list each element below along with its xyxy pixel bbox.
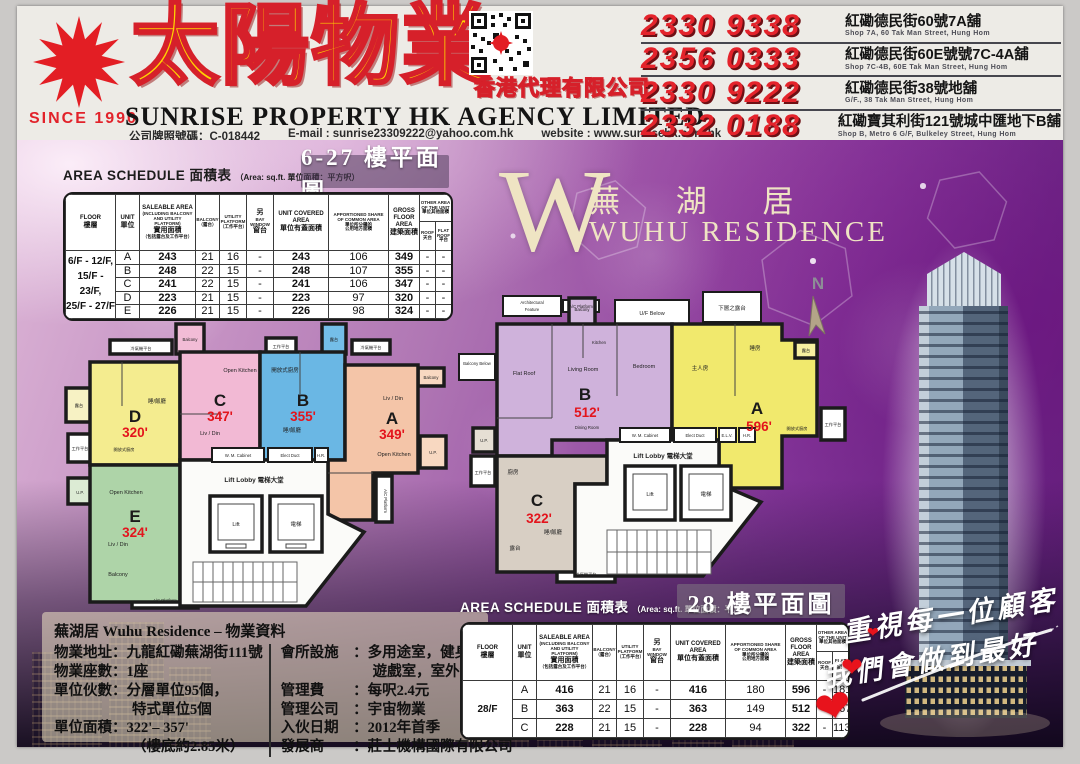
room-label: Kitchen	[592, 340, 607, 345]
header: SINCE 1990 太陽物業 SUNRISE PROPERTY HK AGEN…	[17, 6, 1063, 140]
info-value: 宇宙物業	[368, 702, 426, 718]
service-label: W. M. Cabinet	[632, 433, 659, 438]
outside-label: U/F Below	[639, 311, 664, 317]
col-common: APPORTIONED SHAREOF COMMON AREA單位所分攤的公用地…	[726, 625, 786, 681]
col-balcony: BALCONY（露台）	[196, 195, 220, 251]
room-label: 露台	[509, 544, 521, 552]
table-row: E2262115-22698324--	[66, 305, 452, 319]
swoosh-underline	[855, 614, 1060, 714]
unit-letter: A	[386, 409, 398, 428]
outside-label: A/C Platform	[569, 304, 593, 309]
table-header: FLOOR樓層 UNIT單位 SALEABLE AREA(INCLUDING B…	[463, 625, 849, 681]
schedule-title-text: AREA SCHEDULE 面積表	[63, 168, 232, 183]
info-value: 1座	[127, 664, 149, 680]
area-table-6-27: FLOOR樓層 UNIT單位 SALEABLE AREA(INCLUDING B…	[63, 192, 453, 321]
unit-letter: C	[214, 391, 226, 410]
col-covered: UNIT COVERED AREA單位有蓋面積	[671, 625, 726, 681]
branch-address: 紅磡德民街60E號號7C-4A舖 Shop 7C-4B, 60E Tak Man…	[845, 48, 1061, 71]
info-label: 物業座數：	[54, 664, 127, 680]
info-label: 會所設施 ：	[281, 645, 368, 661]
col-saleable: SALEABLE AREA(INCLUDING BALCONY AND UTIL…	[140, 195, 196, 251]
room-label: 工作平台	[72, 445, 89, 452]
branch-address: 紅磡德民街60號7A舖 Shop 7A, 60 Tak Man Street, …	[845, 15, 1061, 38]
col-common: APPORTIONED SHAREOF COMMON AREA單位所分攤的公用地…	[329, 195, 389, 251]
col-covered: UNIT COVERED AREA單位有蓋面積	[274, 195, 329, 251]
unit-letter: D	[129, 407, 141, 426]
branch-list: 2330 9338 紅磡德民街60號7A舖 Shop 7A, 60 Tak Ma…	[641, 10, 1061, 144]
table-row: B3632215-363149512-167	[463, 700, 849, 719]
room-label: 露台	[330, 336, 338, 343]
qr-code-icon	[469, 11, 533, 75]
room-label: 廚房	[507, 468, 519, 476]
room-label: A/C Platform	[383, 489, 388, 513]
info-value: 每呎2.4元	[368, 683, 430, 699]
service-label: Elect Duct	[685, 433, 705, 438]
col-gross: GROSS FLOOR AREA建築面積	[786, 625, 817, 681]
unit-letter: B	[579, 385, 591, 404]
info-value: 分層單位95個，	[127, 683, 229, 699]
branch-address-en: Shop 7A, 60 Tak Man Street, Hung Hom	[845, 30, 1061, 37]
branch-address-en: G/F., 38 Tak Man Street, Hung Hom	[845, 97, 1061, 104]
room-label: Balcony	[183, 337, 199, 342]
lift-label: Lift	[232, 522, 240, 528]
flyer-page: SINCE 1990 太陽物業 SUNRISE PROPERTY HK AGEN…	[17, 6, 1063, 747]
room-label: U.P.	[76, 490, 84, 495]
service-label: H.R.	[743, 433, 751, 438]
branch-phone: 2332 0188	[641, 109, 838, 143]
table-row: C2282115-22894322-113	[463, 719, 849, 738]
table-row: B2482215-248107355--	[66, 264, 452, 278]
lift-lobby-label: Lift Lobby 電梯大堂	[224, 475, 284, 484]
room-label: 工作平台	[273, 343, 290, 350]
table-row: 6/F - 12/F,15/F - 23/F,25/F - 27/F A2432…	[66, 251, 452, 265]
branch-phone: 2330 9222	[641, 76, 845, 110]
compass-arrow-icon	[805, 294, 831, 340]
stairs	[607, 530, 711, 574]
branch-address-cn: 紅磡德民街60E號號7C-4A舖	[845, 48, 1061, 63]
room-label: 開放式廚房	[114, 446, 135, 453]
info-label: 入伙日期 ：	[281, 720, 368, 736]
room-label: Living Room	[568, 367, 599, 373]
balcony-below-box	[459, 354, 495, 380]
arch-feature-box	[503, 296, 561, 316]
branch-phone: 2330 9338	[641, 9, 845, 43]
floor-range: 6/F - 12/F,15/F - 23/F,25/F - 27/F	[66, 251, 116, 319]
col-unit: UNIT單位	[116, 195, 140, 251]
room-label: 工作平台	[475, 469, 492, 476]
balcony-tab	[569, 298, 595, 326]
col-gross: GROSS FLOOR AREA建築面積	[389, 195, 420, 251]
room-label: 工作平台	[825, 421, 842, 428]
outside-label: 下層之露台	[718, 304, 746, 312]
plan-title-28: 28 樓平面圖	[677, 584, 845, 618]
unit-area: 347'	[207, 409, 233, 424]
north-label: N	[805, 274, 831, 294]
branch-row: 2330 9338 紅磡德民街60號7A舖 Shop 7A, 60 Tak Ma…	[641, 10, 1061, 44]
floor-range: 28/F	[463, 681, 513, 738]
room-label: Open Kitchen	[377, 452, 410, 458]
col-bay-window: 另BAY WINDOW窗台	[247, 195, 274, 251]
area-table-28: FLOOR樓層 UNIT單位 SALEABLE AREA(INCLUDING B…	[460, 622, 850, 740]
lift-label: 電梯	[700, 490, 712, 498]
room-label: Bedroom	[633, 364, 656, 370]
info-title: 蕪湖居 Wuhu Residence – 物業資料	[54, 620, 478, 641]
room-label: U.P.	[480, 438, 488, 443]
col-floor: FLOOR樓層	[66, 195, 116, 251]
col-unit: UNIT單位	[513, 625, 537, 681]
unit-letter: B	[297, 391, 309, 410]
service-label: W. M. Cabinet	[225, 453, 252, 458]
col-roof: ROOF天台	[420, 222, 436, 251]
floor-plan-28: B 512' A 596' C 322' Flat Roof Living Ro…	[457, 278, 902, 596]
room-label: 開放式廚房	[787, 425, 808, 432]
table-header: FLOOR樓層 UNIT單位 SALEABLE AREA(INCLUDING B…	[66, 195, 452, 251]
service-label: E.L.V.	[721, 433, 732, 438]
unit-area: 324'	[122, 525, 148, 540]
col-bay-window: 另BAY WINDOW窗台	[644, 625, 671, 681]
room-label: 露台	[75, 402, 83, 409]
branch-row: 2330 9222 紅磡德民街38號地舖 G/F., 38 Tak Man St…	[641, 77, 1061, 111]
unit-area: 322'	[526, 511, 552, 526]
info-label: 管理費 ：	[281, 683, 368, 699]
info-label: 單位伙數：	[54, 683, 127, 699]
room-label: 睡房	[749, 344, 761, 352]
info-label: 物業地址：	[54, 645, 127, 661]
unit-letter: E	[129, 507, 140, 526]
room-label: Liv / Din	[200, 431, 220, 437]
unit-letter: C	[531, 491, 543, 510]
room-label: Open Kitchen	[223, 368, 256, 374]
room-label: Balcony	[424, 375, 440, 380]
branch-address: 紅磡寶其利街121號城中匯地下B舖 Shop B, Metro 6 G/F, B…	[838, 115, 1061, 138]
room-label: Liv / Din	[108, 542, 128, 548]
branch-address-cn: 紅磡寶其利街121號城中匯地下B舖	[838, 115, 1061, 130]
info-value: 莊士機構國際有限公司	[368, 739, 513, 755]
unit-area: 320'	[122, 425, 148, 440]
branch-address-cn: 紅磡德民街38號地舖	[845, 82, 1061, 97]
info-label: 發展商 ：	[281, 739, 368, 755]
info-value: 322'– 357'	[127, 720, 189, 736]
stairs	[193, 562, 297, 602]
unit-area: 349'	[379, 427, 405, 442]
room-label: U.P.	[429, 450, 437, 455]
room-label: Dining Room	[575, 425, 600, 430]
lift-label: 電梯	[290, 520, 302, 528]
unit-letter: A	[751, 399, 763, 418]
branch-row: 2356 0333 紅磡德民街60E號號7C-4A舖 Shop 7C-4B, 6…	[641, 44, 1061, 78]
branch-address-en: Shop 7C-4B, 60E Tak Man Street, Hung Hom	[845, 64, 1061, 71]
floor-plan-6-27: D 320' C 347' B 355' A 349' E 324' 睡/飯廳 …	[60, 310, 480, 620]
table-row: 28/F A4162116-416180596-181	[463, 681, 849, 700]
col-balcony: BALCONY（露台）	[593, 625, 617, 681]
project-name-chinese: 蕪 湖 居	[589, 176, 818, 221]
room-label: 冷氣機平台	[576, 571, 597, 578]
branch-address: 紅磡德民街38號地舖 G/F., 38 Tak Man Street, Hung…	[845, 82, 1061, 105]
info-value: 特式單位5個	[54, 701, 263, 720]
unit-area: 355'	[290, 409, 316, 424]
plan-title-6-27: 6-27 樓平面圖	[301, 155, 449, 188]
room-label: 睡/飯廳	[544, 528, 563, 536]
agency-name-chinese: 香港代理有限公司	[467, 72, 657, 102]
info-value: 2012年首季	[368, 720, 441, 736]
info-value: （樓底約2.85米）	[54, 738, 263, 757]
room-label: 主人房	[692, 364, 709, 372]
room-label: A/C Platform	[153, 598, 177, 603]
room-label: Balcony	[108, 572, 128, 578]
info-left-column: 物業地址：九龍紅磡蕪湖街111號 物業座數：1座 單位伙數：分層單位95個， 特…	[54, 644, 271, 757]
project-name-english: WUHU RESIDENCE	[589, 216, 888, 249]
table-row: D2232115-22397320--	[66, 291, 452, 305]
room-label: 冷氣機平台	[131, 345, 152, 352]
outside-label: Balcony Below	[463, 361, 491, 366]
branch-address-en: Shop B, Metro 6 G/F, Bulkeley Street, Hu…	[838, 131, 1061, 138]
service-label: Elect Duct	[280, 453, 300, 458]
info-label: 單位面積：	[54, 720, 127, 736]
branch-row: 2332 0188 紅磡寶其利街121號城中匯地下B舖 Shop B, Metr…	[641, 111, 1061, 145]
room-label: 睡/飯廳	[283, 426, 302, 434]
col-other-area: OTHER AREA OF THE UNIT單位其他面積	[420, 195, 452, 222]
outside-label: Architectural	[520, 300, 543, 305]
unit-area: 512'	[574, 405, 600, 420]
lift-lobby-label: Lift Lobby 電梯大堂	[633, 451, 693, 460]
room-label: Open Kitchen	[109, 490, 142, 496]
service-label: H.R.	[317, 453, 325, 458]
sun-logo-icon	[27, 12, 131, 112]
room-label: 露台	[802, 347, 810, 354]
north-compass: N	[805, 274, 831, 345]
room-label: 開放式廚房	[271, 366, 299, 374]
branch-phone: 2356 0333	[641, 42, 845, 76]
since-label: SINCE 1990	[29, 110, 138, 128]
col-utility: UTILITY PLATFORM（工作平台）	[220, 195, 247, 251]
room-label: 冷氣機平台	[361, 344, 382, 351]
room-label: 睡/飯廳	[148, 397, 167, 405]
outside-label: Feature	[525, 307, 540, 312]
unit-area: 596'	[746, 419, 772, 434]
property-info-box: 蕪湖居 Wuhu Residence – 物業資料 物業地址：九龍紅磡蕪湖街11…	[42, 612, 488, 742]
brand-name-chinese: 太陽物業	[131, 0, 491, 100]
room-label: Flat Roof	[513, 371, 536, 377]
info-value: 九龍紅磡蕪湖街111號	[127, 645, 263, 661]
branch-address-cn: 紅磡德民街60號7A舖	[845, 15, 1061, 30]
col-saleable: SALEABLE AREA(INCLUDING BALCONY AND UTIL…	[537, 625, 593, 681]
col-floor: FLOOR樓層	[463, 625, 513, 681]
lift-label: Lift	[646, 492, 654, 498]
info-label: 管理公司 ：	[281, 702, 368, 718]
table-row: C2412215-241106347--	[66, 278, 452, 292]
col-flat-roof: FLAT ROOF平台	[436, 222, 452, 251]
sparkle-dots	[17, 140, 19, 142]
room-label: Liv / Din	[383, 396, 403, 402]
col-utility: UTILITY PLATFORM（工作平台）	[617, 625, 644, 681]
